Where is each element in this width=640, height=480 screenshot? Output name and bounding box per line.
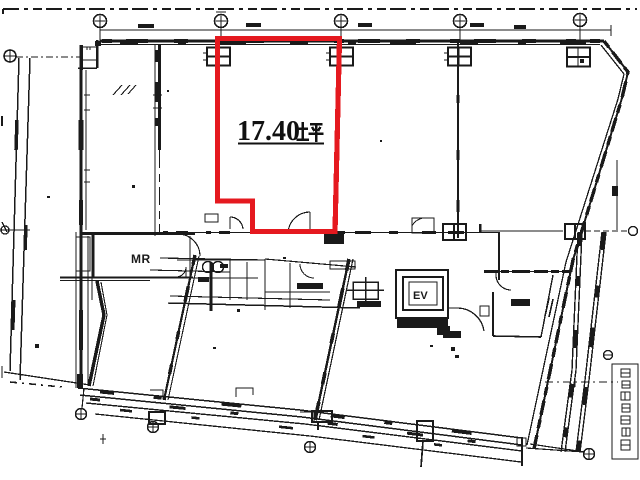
svg-text:MR: MR xyxy=(131,252,151,266)
svg-text:EV: EV xyxy=(413,290,428,302)
